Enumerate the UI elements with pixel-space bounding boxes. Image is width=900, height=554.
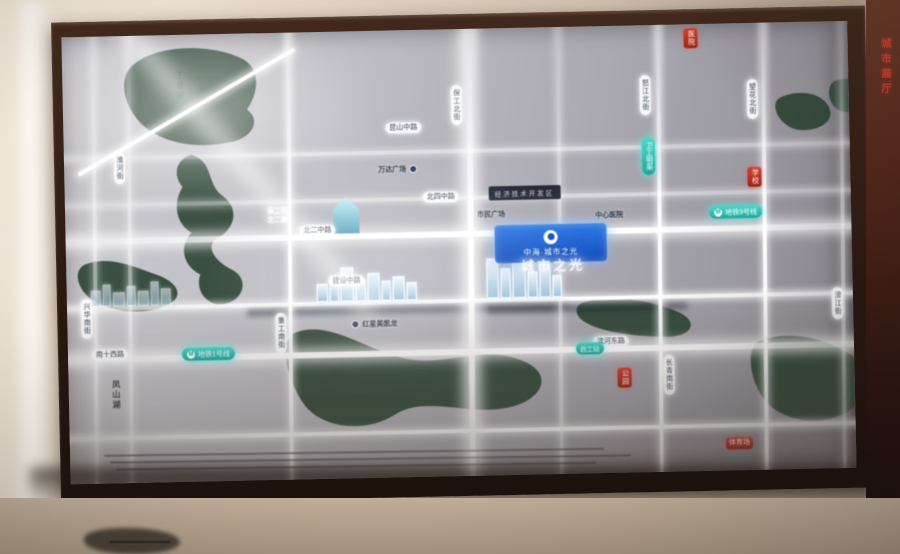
map-bottom-shading [61,21,856,484]
photo-scene: 保工北街 怒江北街 望花北街 兴华南街 重工南街 长青南街 滂江街 淮河街 北二… [0,0,900,554]
backlit-city-map: 保工北街 怒江北街 望花北街 兴华南街 重工南街 长青南街 滂江街 淮河街 北二… [61,21,856,484]
foreground-object-line [110,541,170,543]
wall-sign-text: 城市展厅 [877,38,892,98]
map-display-frame: 保工北街 怒江北街 望花北街 兴华南街 重工南街 长青南街 滂江街 淮河街 北二… [51,6,875,505]
